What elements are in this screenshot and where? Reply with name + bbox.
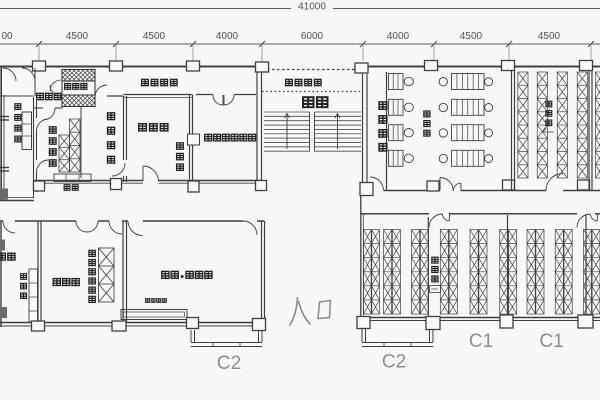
- svg-text:41000: 41000: [298, 2, 326, 13]
- svg-text:4500: 4500: [460, 31, 483, 42]
- svg-text:00: 00: [1, 31, 13, 42]
- svg-text:6000: 6000: [301, 31, 324, 42]
- svg-text:4500: 4500: [66, 31, 89, 42]
- svg-text:4500: 4500: [143, 31, 166, 42]
- svg-text:4500: 4500: [538, 31, 561, 42]
- svg-text:C1: C1: [539, 331, 563, 352]
- svg-text:C1: C1: [469, 331, 493, 352]
- svg-text:4000: 4000: [216, 31, 239, 42]
- svg-text:4000: 4000: [387, 31, 410, 42]
- svg-text:C2: C2: [382, 352, 406, 373]
- svg-text:C2: C2: [217, 353, 241, 374]
